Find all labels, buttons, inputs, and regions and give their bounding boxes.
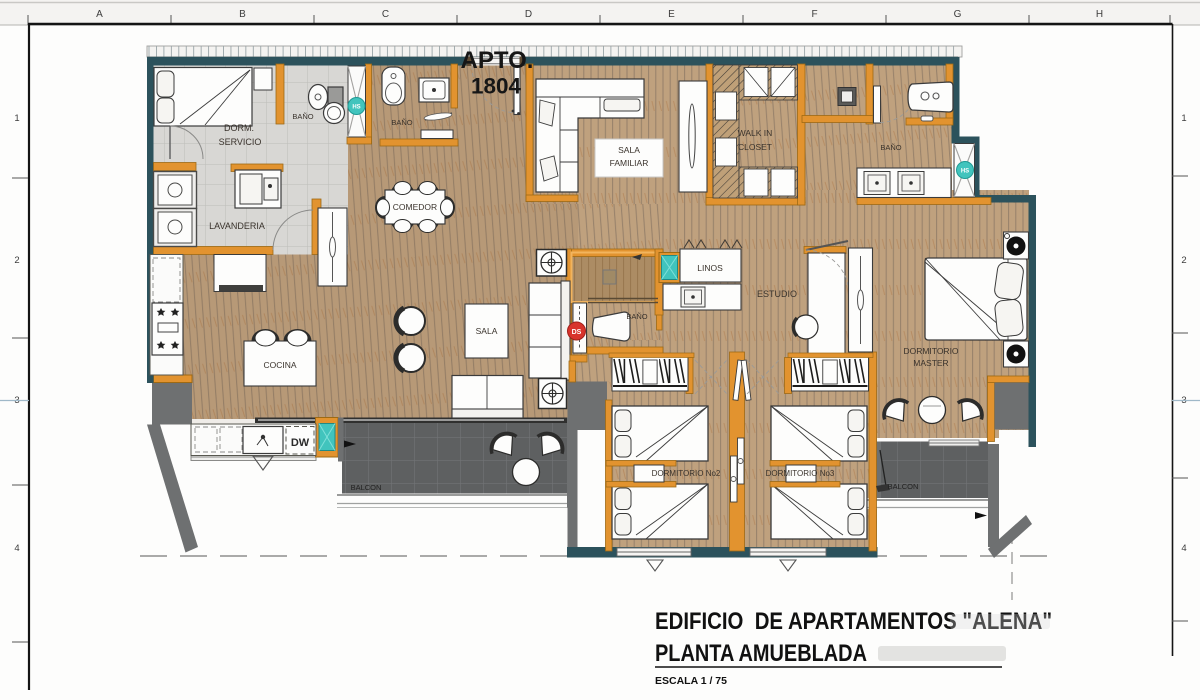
svg-text:HS: HS (961, 169, 969, 175)
svg-text:ESCALA 1 / 75: ESCALA 1 / 75 (655, 675, 727, 687)
svg-text:E: E (668, 9, 675, 20)
svg-text:LAVANDERIA: LAVANDERIA (209, 221, 265, 231)
svg-text:COCINA: COCINA (263, 360, 296, 370)
svg-text:F: F (811, 9, 817, 20)
svg-text:G: G (954, 9, 962, 20)
svg-text:BAÑO: BAÑO (292, 112, 313, 121)
svg-text:BALCON: BALCON (351, 483, 382, 492)
svg-text:BAÑO: BAÑO (391, 118, 412, 127)
svg-text:B: B (239, 9, 246, 20)
svg-text:COMEDOR: COMEDOR (393, 202, 437, 212)
svg-text:FAMILIAR: FAMILIAR (610, 158, 649, 168)
svg-text:H: H (1096, 9, 1103, 20)
svg-text:HS: HS (352, 105, 360, 111)
svg-text:2: 2 (14, 255, 19, 266)
svg-text:CLOSET: CLOSET (738, 142, 772, 152)
svg-text:1: 1 (1181, 113, 1186, 124)
svg-text:DORMITORIO No2: DORMITORIO No2 (652, 469, 721, 478)
svg-text:C: C (382, 9, 389, 20)
svg-text:D: D (525, 9, 532, 20)
svg-text:DW: DW (291, 437, 310, 449)
svg-text:1: 1 (14, 113, 19, 124)
svg-text:2: 2 (1181, 255, 1186, 266)
svg-text:4: 4 (1181, 543, 1186, 554)
svg-text:LINOS: LINOS (697, 263, 723, 273)
svg-text:DORMITORIO No3: DORMITORIO No3 (766, 469, 835, 478)
svg-text:DORMITORIO: DORMITORIO (903, 346, 958, 356)
svg-text:DORM.: DORM. (224, 123, 254, 133)
svg-text:APTO.: APTO. (461, 47, 534, 74)
svg-text:BALCON: BALCON (888, 482, 919, 491)
svg-text:DS: DS (572, 329, 582, 336)
svg-text:1804: 1804 (471, 74, 522, 99)
svg-text:SALA: SALA (476, 326, 498, 336)
svg-text:PLANTA AMUEBLADA: PLANTA AMUEBLADA (655, 640, 867, 667)
svg-text:MASTER: MASTER (913, 358, 948, 368)
svg-text:BAÑO: BAÑO (880, 143, 901, 152)
svg-text:A: A (96, 9, 103, 20)
svg-text:WALK IN: WALK IN (738, 128, 773, 138)
svg-text:BAÑO: BAÑO (626, 312, 647, 321)
svg-text:SERVICIO: SERVICIO (219, 137, 262, 147)
svg-text:ESTUDIO: ESTUDIO (757, 289, 797, 299)
svg-text:SALA: SALA (618, 145, 640, 155)
svg-text:4: 4 (14, 543, 19, 554)
